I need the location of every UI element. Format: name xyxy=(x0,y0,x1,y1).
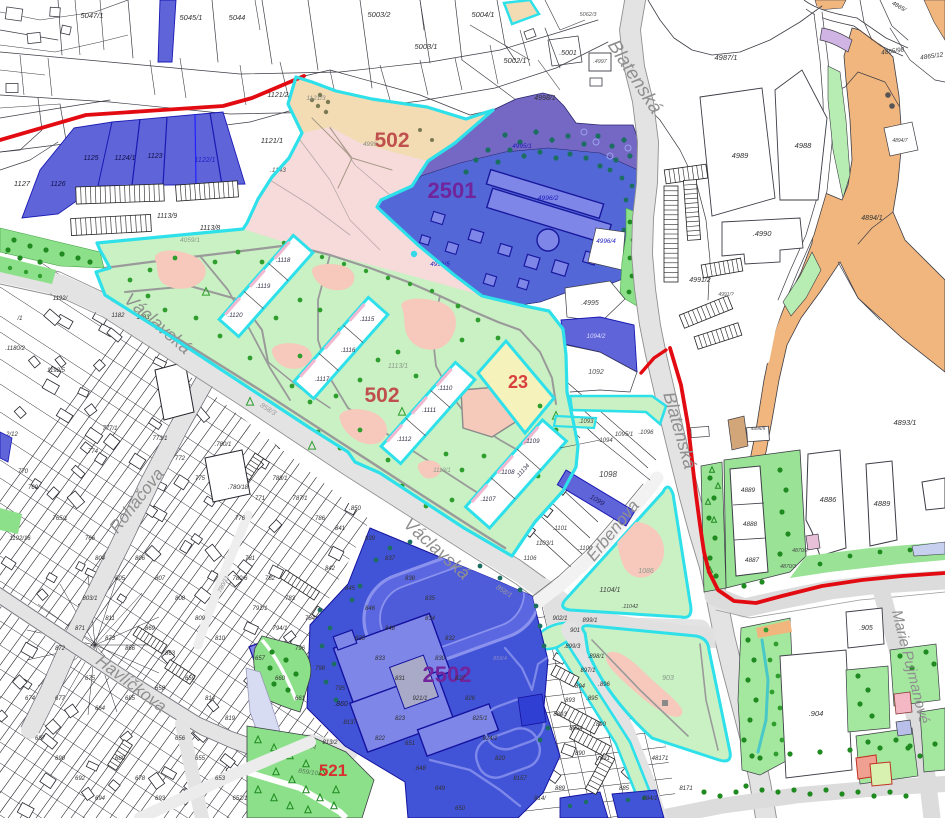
svg-text:4989: 4989 xyxy=(732,151,750,160)
svg-text:839: 839 xyxy=(365,536,376,542)
svg-text:4999: 4999 xyxy=(363,141,377,148)
svg-text:782: 782 xyxy=(265,576,276,582)
svg-text:5044: 5044 xyxy=(229,13,246,22)
svg-text:.905: .905 xyxy=(859,625,873,632)
svg-text:1098: 1098 xyxy=(599,470,617,479)
svg-text:48171: 48171 xyxy=(652,756,669,762)
svg-text:781: 781 xyxy=(245,556,255,562)
svg-text:678: 678 xyxy=(135,776,146,782)
svg-text:4998/1: 4998/1 xyxy=(534,95,556,102)
svg-text:521: 521 xyxy=(319,761,347,780)
svg-text:.899/3: .899/3 xyxy=(564,644,581,650)
svg-text:772: 772 xyxy=(175,456,186,462)
svg-text:.860: .860 xyxy=(334,701,348,708)
svg-text:690: 690 xyxy=(55,756,66,762)
svg-text:.1117: .1117 xyxy=(315,376,330,383)
svg-text:872: 872 xyxy=(55,646,66,652)
svg-text:777/1: 777/1 xyxy=(102,426,117,432)
svg-text:5002/1: 5002/1 xyxy=(504,56,527,65)
svg-text:805: 805 xyxy=(115,576,126,582)
svg-text:871: 871 xyxy=(75,626,85,632)
svg-text:.1119: .1119 xyxy=(256,283,271,290)
svg-text:885: 885 xyxy=(619,786,630,792)
svg-text:769: 769 xyxy=(28,485,39,491)
svg-text:823: 823 xyxy=(395,716,406,722)
svg-text:.896: .896 xyxy=(598,682,610,688)
svg-text:4894/7: 4894/7 xyxy=(892,138,908,144)
svg-text:4889: 4889 xyxy=(874,499,892,508)
svg-text:889: 889 xyxy=(555,786,566,792)
svg-text:502: 502 xyxy=(364,384,399,407)
svg-text:502: 502 xyxy=(374,129,409,152)
svg-text:771: 771 xyxy=(255,496,265,502)
svg-text:.1116: .1116 xyxy=(341,347,356,354)
svg-text:783: 783 xyxy=(285,596,296,602)
svg-text:653: 653 xyxy=(215,776,226,782)
svg-text:693: 693 xyxy=(155,796,166,802)
svg-text:884/1: 884/1 xyxy=(642,796,657,802)
svg-text:835: 835 xyxy=(425,596,436,602)
svg-text:897/1: 897/1 xyxy=(580,668,595,674)
svg-text:650: 650 xyxy=(455,806,466,812)
svg-text:804: 804 xyxy=(95,556,106,562)
svg-text:776: 776 xyxy=(235,516,246,522)
svg-text:.4995: .4995 xyxy=(581,300,599,307)
svg-text:5047/1: 5047/1 xyxy=(81,11,104,20)
svg-text:819: 819 xyxy=(225,716,236,722)
svg-text:4988: 4988 xyxy=(795,141,813,150)
svg-text:.890: .890 xyxy=(594,722,606,728)
svg-text:830: 830 xyxy=(435,656,446,662)
svg-text:1094: 1094 xyxy=(599,438,613,444)
svg-text:660: 660 xyxy=(275,676,286,682)
svg-text:820: 820 xyxy=(495,756,506,762)
svg-text:893: 893 xyxy=(565,698,576,704)
svg-text:655: 655 xyxy=(195,756,206,762)
svg-text:4987/1: 4987/1 xyxy=(715,53,738,62)
svg-text:791/1: 791/1 xyxy=(252,606,267,612)
svg-text:.895: .895 xyxy=(586,696,598,702)
svg-text:.1111: .1111 xyxy=(422,407,436,414)
svg-text:773/1: 773/1 xyxy=(152,436,167,442)
svg-text:827: 827 xyxy=(455,676,466,682)
svg-text:.1096: .1096 xyxy=(638,430,654,436)
svg-text:1121/1: 1121/1 xyxy=(261,136,283,145)
svg-text:5003/2: 5003/2 xyxy=(368,10,392,19)
svg-text:.904: .904 xyxy=(809,709,824,718)
svg-text:4059/1: 4059/1 xyxy=(180,237,200,244)
svg-text:780/6: 780/6 xyxy=(232,576,248,582)
svg-text:680: 680 xyxy=(115,756,126,762)
svg-text:798: 798 xyxy=(315,666,326,672)
svg-text:866: 866 xyxy=(125,646,136,652)
svg-text:656: 656 xyxy=(175,736,186,742)
svg-text:842: 842 xyxy=(325,566,336,572)
svg-text:841: 841 xyxy=(335,526,345,532)
svg-text:675: 675 xyxy=(85,676,96,682)
svg-text:5045/1: 5045/1 xyxy=(180,13,203,22)
svg-text:1125: 1125 xyxy=(83,155,98,162)
svg-text:1122/1: 1122/1 xyxy=(195,157,216,164)
svg-text:1094/2: 1094/2 xyxy=(587,333,606,340)
svg-text:1113/1: 1113/1 xyxy=(388,363,408,370)
svg-text:803/1: 803/1 xyxy=(82,596,97,602)
svg-text:894: 894 xyxy=(575,684,586,690)
svg-text:774: 774 xyxy=(88,449,99,455)
svg-text:.1109: .1109 xyxy=(524,438,540,445)
svg-text:.1118: .1118 xyxy=(276,257,291,264)
svg-text:848: 848 xyxy=(385,626,396,632)
svg-text:903: 903 xyxy=(662,675,674,682)
svg-text:687: 687 xyxy=(35,736,46,742)
svg-text:1123: 1123 xyxy=(147,153,162,160)
svg-text:825/1: 825/1 xyxy=(472,716,487,722)
svg-text:2501: 2501 xyxy=(428,178,477,203)
svg-text:902/1: 902/1 xyxy=(552,616,567,622)
svg-text:863: 863 xyxy=(165,651,176,657)
svg-text:649: 649 xyxy=(435,786,446,792)
svg-text:1095/1: 1095/1 xyxy=(615,432,633,438)
svg-text:4886: 4886 xyxy=(820,495,838,504)
svg-text:8171: 8171 xyxy=(679,786,692,792)
svg-text:1182: 1182 xyxy=(112,313,126,319)
svg-text:1113/1: 1113/1 xyxy=(433,468,450,474)
svg-text:.648: .648 xyxy=(414,766,426,772)
svg-text:766: 766 xyxy=(85,536,96,542)
svg-text:765/1: 765/1 xyxy=(52,516,67,522)
svg-text:659: 659 xyxy=(185,676,196,682)
svg-text:664: 664 xyxy=(95,706,106,712)
svg-text:.850: .850 xyxy=(349,506,361,512)
svg-text:23: 23 xyxy=(508,372,528,392)
svg-text:.1108: .1108 xyxy=(499,469,515,476)
svg-text:.1101: .1101 xyxy=(553,526,568,532)
svg-text:834: 834 xyxy=(425,616,436,622)
svg-text:1192/: 1192/ xyxy=(53,296,69,302)
svg-text:810: 810 xyxy=(215,636,226,642)
svg-text:788/1: 788/1 xyxy=(272,476,287,482)
svg-text:1113/9: 1113/9 xyxy=(157,213,177,220)
svg-text:1092: 1092 xyxy=(588,369,604,376)
svg-text:4889: 4889 xyxy=(741,487,756,494)
svg-text:824/1: 824/1 xyxy=(482,736,497,742)
svg-text:4893/1: 4893/1 xyxy=(894,418,917,427)
svg-text:807: 807 xyxy=(155,576,166,582)
svg-text:1121/2: 1121/2 xyxy=(268,92,289,99)
svg-text:786: 786 xyxy=(315,516,326,522)
svg-text:.11042: .11042 xyxy=(622,604,638,610)
svg-text:859/4: 859/4 xyxy=(493,656,507,662)
svg-text:.1120: .1120 xyxy=(227,312,243,319)
svg-text:5003/1: 5003/1 xyxy=(415,42,438,51)
svg-text:8137: 8137 xyxy=(343,720,357,726)
svg-text:869: 869 xyxy=(145,626,156,632)
svg-text:770: 770 xyxy=(18,469,29,475)
svg-text:8893: 8893 xyxy=(553,712,567,718)
svg-text:814/: 814/ xyxy=(534,796,547,802)
svg-text:674: 674 xyxy=(25,696,36,702)
svg-text:657: 657 xyxy=(255,656,266,662)
svg-text:1104/1: 1104/1 xyxy=(600,587,621,594)
svg-text:651: 651 xyxy=(405,741,415,747)
svg-text:.780/18: .780/18 xyxy=(228,485,249,491)
svg-text:1103/1: 1103/1 xyxy=(536,541,554,547)
svg-text:.891: .891 xyxy=(598,756,610,762)
svg-text:.1110: .1110 xyxy=(438,385,453,392)
svg-text:822: 822 xyxy=(375,736,386,742)
svg-text:4887: 4887 xyxy=(745,557,760,564)
svg-text:.4997: .4997 xyxy=(593,59,607,65)
svg-text:899/1: 899/1 xyxy=(582,618,597,624)
svg-text:692: 692 xyxy=(75,776,86,782)
svg-text:890: 890 xyxy=(575,751,586,757)
svg-text:2502: 2502 xyxy=(423,662,472,687)
svg-text:4894/1: 4894/1 xyxy=(861,215,883,222)
svg-text:.1115: .1115 xyxy=(360,316,375,323)
svg-text:.1093: .1093 xyxy=(578,419,594,425)
svg-text:845: 845 xyxy=(345,586,356,592)
svg-text:846: 846 xyxy=(365,606,376,612)
svg-text:826: 826 xyxy=(465,696,476,702)
svg-text:694: 694 xyxy=(95,796,106,802)
svg-text:809: 809 xyxy=(195,616,206,622)
svg-text:808: 808 xyxy=(175,596,186,602)
svg-text:873: 873 xyxy=(105,636,116,642)
svg-text:661: 661 xyxy=(295,696,305,702)
svg-text:4991/?: 4991/? xyxy=(718,292,734,298)
svg-text:5062/3: 5062/3 xyxy=(580,12,598,18)
svg-text:.5001: .5001 xyxy=(559,50,577,57)
svg-text:/1: /1 xyxy=(16,316,22,322)
svg-text:1126: 1126 xyxy=(50,181,65,188)
svg-text:796: 796 xyxy=(295,646,306,652)
svg-text:4870/3: 4870/3 xyxy=(780,564,796,570)
svg-text:677: 677 xyxy=(55,696,66,702)
svg-text:4996/2: 4996/2 xyxy=(538,195,559,202)
svg-text:1086: 1086 xyxy=(638,568,654,575)
svg-text:838: 838 xyxy=(405,576,416,582)
svg-text:813/2: 813/2 xyxy=(322,740,338,746)
svg-text:8157: 8157 xyxy=(513,776,527,782)
svg-text:794/1: 794/1 xyxy=(272,626,287,632)
svg-text:806: 806 xyxy=(135,556,146,562)
svg-text:8894: 8894 xyxy=(569,726,583,732)
svg-text:811: 811 xyxy=(105,616,115,622)
svg-text:775: 775 xyxy=(195,476,206,482)
svg-text:4995/1: 4995/1 xyxy=(512,143,532,150)
svg-text:.898/1: .898/1 xyxy=(588,654,605,660)
svg-text:4888: 4888 xyxy=(743,521,758,528)
svg-text:4895/5: 4895/5 xyxy=(751,426,766,432)
svg-text:795: 795 xyxy=(335,686,346,692)
svg-text:5004/1: 5004/1 xyxy=(472,10,495,19)
svg-text:784: 784 xyxy=(305,616,316,622)
svg-text:652/1: 652/1 xyxy=(232,796,247,802)
svg-text:1106: 1106 xyxy=(524,556,538,562)
svg-text:837: 837 xyxy=(385,556,396,562)
svg-text:921/1: 921/1 xyxy=(412,696,427,702)
svg-text:832: 832 xyxy=(445,636,456,642)
svg-text:.1107: .1107 xyxy=(480,496,496,503)
svg-text:787/1: 787/1 xyxy=(292,496,307,502)
svg-text:831: 831 xyxy=(395,676,405,682)
svg-text:.780/1: .780/1 xyxy=(215,442,232,448)
svg-text:.1180/2: .1180/2 xyxy=(5,346,25,352)
svg-text:1192/5: 1192/5 xyxy=(47,368,66,374)
svg-text:833: 833 xyxy=(375,656,386,662)
svg-text:1121/3: 1121/3 xyxy=(306,95,326,102)
svg-text:1127: 1127 xyxy=(14,179,31,188)
svg-text:4991/2: 4991/2 xyxy=(689,277,711,284)
svg-text:4870/2: 4870/2 xyxy=(792,548,808,554)
svg-text:1124/1: 1124/1 xyxy=(115,155,136,162)
svg-text:1192/16: 1192/16 xyxy=(9,536,31,542)
svg-text:814: 814 xyxy=(205,696,216,702)
svg-text:.4990: .4990 xyxy=(753,229,773,238)
svg-text:835: 835 xyxy=(355,636,366,642)
svg-text:4996/4: 4996/4 xyxy=(596,238,616,245)
svg-text:.1112: .1112 xyxy=(397,436,412,443)
svg-text:901: 901 xyxy=(570,628,580,634)
